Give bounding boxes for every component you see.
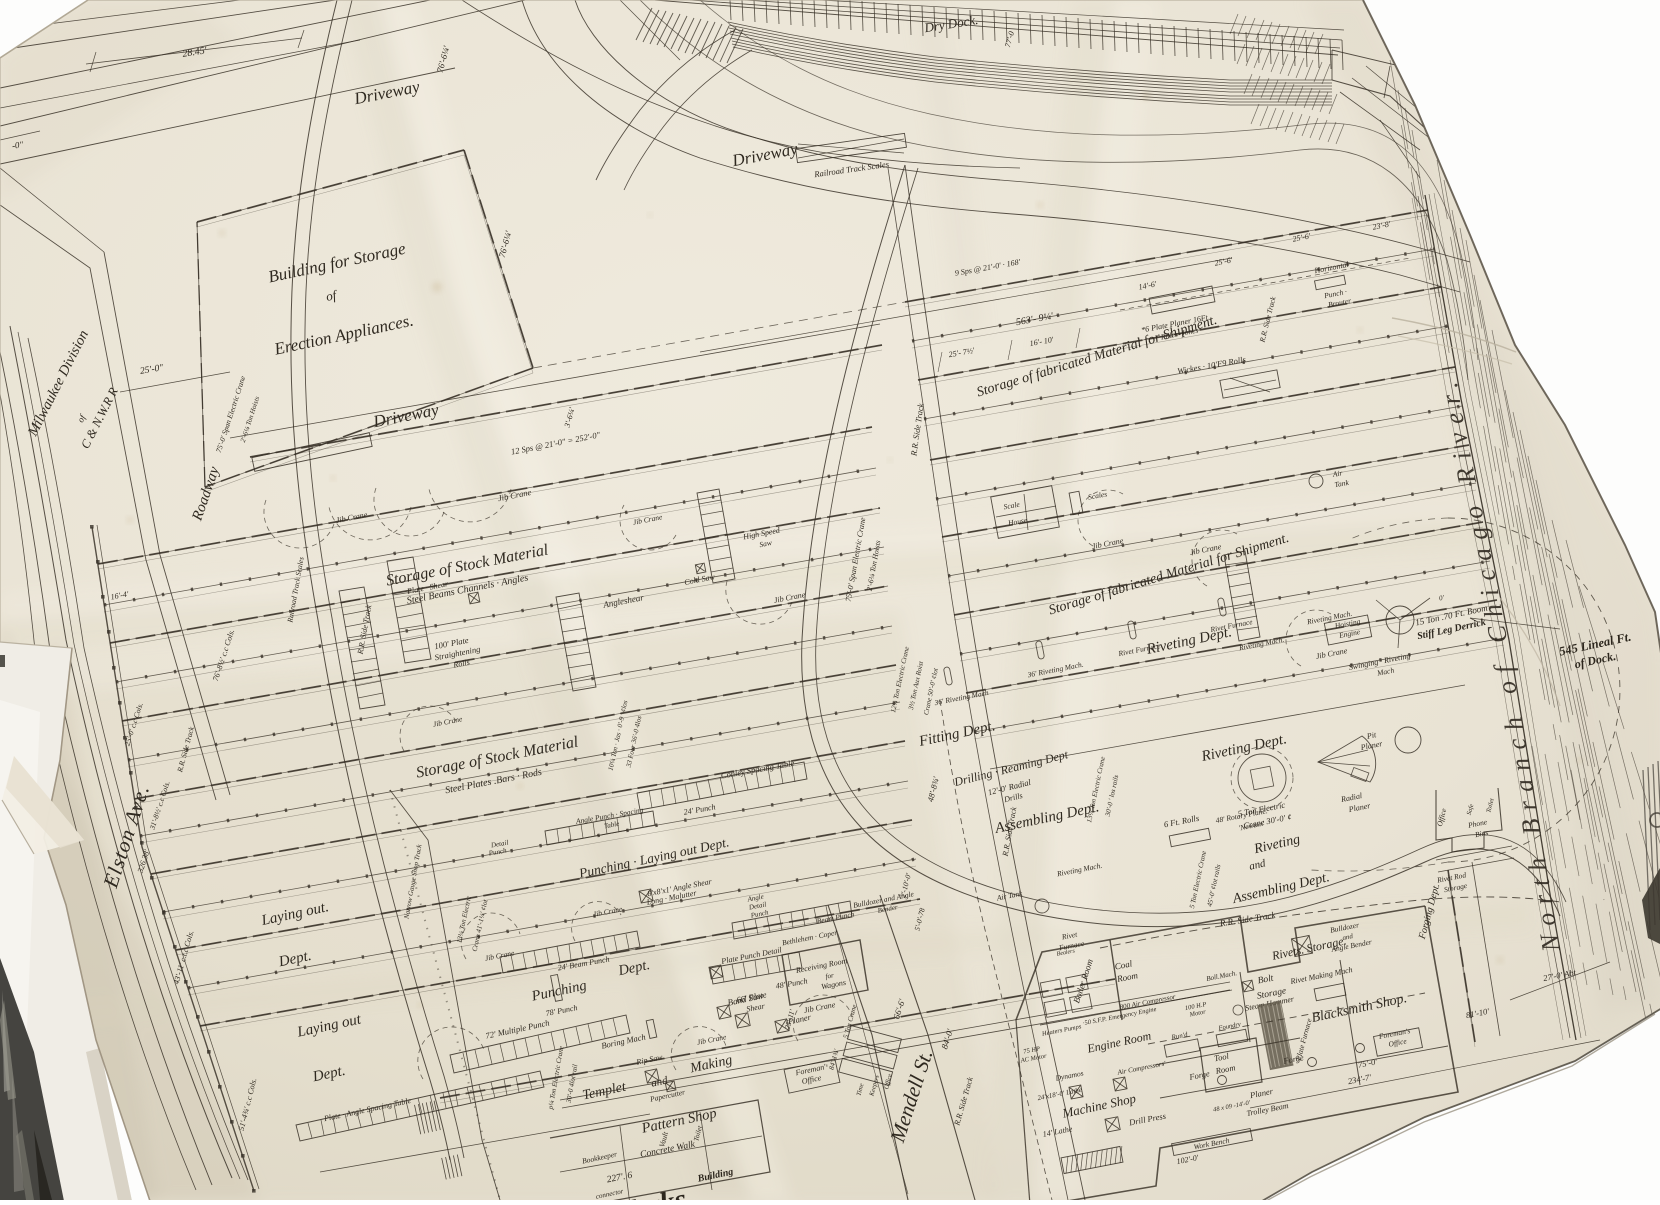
svg-text:Air: Air <box>1331 468 1343 479</box>
svg-text:-0″: -0″ <box>11 139 24 151</box>
